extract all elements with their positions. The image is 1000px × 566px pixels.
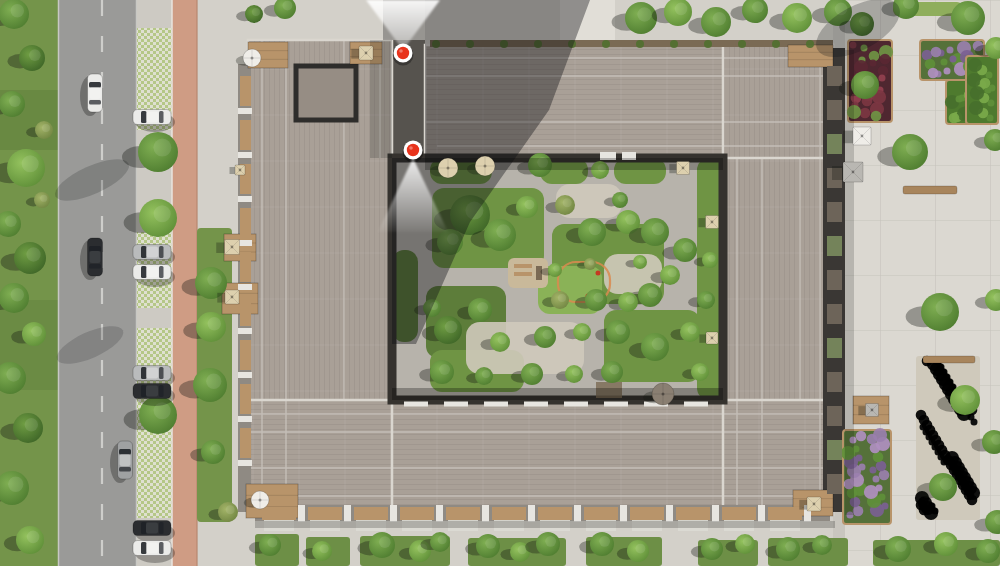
marker-dot [407, 144, 419, 156]
east-balcony [827, 66, 842, 86]
south-terrace-deck [308, 507, 342, 520]
west-terrace-deck [240, 208, 251, 238]
east-balcony [827, 134, 842, 154]
south-terrace-deck [262, 507, 296, 520]
windshield [141, 246, 147, 258]
facade-planter [738, 40, 746, 48]
east-balcony [827, 474, 842, 494]
east-balcony [827, 304, 842, 324]
west-terrace-deck [240, 120, 251, 150]
roof-recess [296, 66, 356, 120]
south-terrace-deck [584, 507, 618, 520]
east-balcony [827, 236, 842, 256]
facade-planter [636, 40, 644, 48]
marker-dot [397, 47, 409, 59]
south-terrace-deck [722, 507, 756, 520]
south-terrace-deck [446, 507, 480, 520]
tree [0, 283, 29, 313]
windshield [141, 367, 147, 379]
west-terrace-deck [240, 340, 251, 370]
east-balcony [827, 338, 842, 358]
east-balcony [827, 202, 842, 222]
east-balcony [827, 440, 842, 460]
facade-planter [772, 40, 780, 48]
south-terrace-deck [354, 507, 388, 520]
aerial-residence-view [0, 0, 1000, 566]
planting-bed-green [966, 56, 998, 124]
east-balcony [827, 270, 842, 290]
windshield [119, 449, 131, 455]
windshield [141, 522, 147, 534]
south-terrace-deck [400, 507, 434, 520]
south-terrace-deck [630, 507, 664, 520]
facade-planter [602, 40, 610, 48]
facade-planter [670, 40, 678, 48]
south-terrace-deck [538, 507, 572, 520]
west-terrace-deck [240, 296, 251, 326]
windshield [89, 82, 101, 88]
west-terrace-deck [240, 252, 251, 282]
facade-planter [806, 40, 814, 48]
tree [0, 91, 25, 117]
west-terrace-deck [240, 384, 251, 414]
windshield [141, 385, 147, 397]
east-balcony [827, 100, 842, 120]
bench [923, 356, 975, 363]
windshield [89, 246, 101, 252]
west-terrace-deck [240, 76, 251, 106]
south-terrace-deck [492, 507, 526, 520]
south-terrace-deck [676, 507, 710, 520]
west-terrace-deck [240, 428, 251, 458]
east-balcony [827, 372, 842, 392]
windshield [141, 111, 147, 123]
windshield [141, 542, 147, 554]
bench [903, 186, 957, 194]
south-wing-roof [248, 400, 833, 515]
south-terrace-deck [768, 507, 802, 520]
east-balcony [827, 406, 842, 426]
facade-planter [704, 40, 712, 48]
windshield [141, 266, 147, 278]
